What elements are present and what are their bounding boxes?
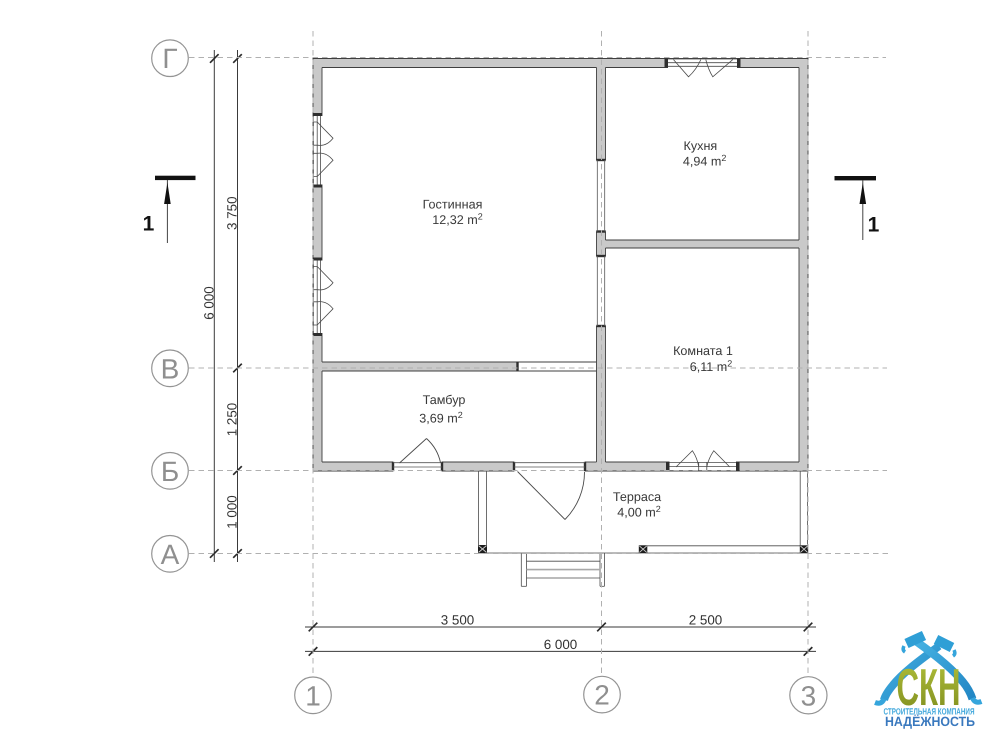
svg-text:1 000: 1 000 [224,495,239,529]
svg-text:Терраса: Терраса [613,490,661,504]
svg-text:1: 1 [143,213,155,236]
svg-text:2: 2 [594,680,610,711]
svg-text:В: В [161,353,180,384]
svg-text:Б: Б [161,456,179,487]
svg-text:1: 1 [868,214,880,237]
svg-text:3,69 m2: 3,69 m2 [419,410,463,426]
svg-text:2 500: 2 500 [689,613,723,628]
svg-text:Тамбур: Тамбур [423,393,466,407]
svg-text:1: 1 [305,680,321,711]
svg-text:А: А [161,539,180,570]
svg-text:Кухня: Кухня [684,139,718,153]
svg-text:6,11 m2: 6,11 m2 [690,358,733,374]
svg-text:НАДЁЖНОСТЬ: НАДЁЖНОСТЬ [885,714,975,729]
svg-text:Комната 1: Комната 1 [673,344,733,358]
svg-text:3 750: 3 750 [224,196,239,230]
svg-text:3: 3 [801,680,817,711]
svg-text:Г: Г [162,43,177,74]
svg-text:4,94 m2: 4,94 m2 [683,153,727,169]
svg-text:4,00 m2: 4,00 m2 [617,504,661,520]
svg-text:Гостинная: Гостинная [423,197,483,211]
svg-text:3 500: 3 500 [441,613,475,628]
svg-text:1 250: 1 250 [224,403,239,437]
svg-text:6 000: 6 000 [544,637,578,652]
svg-text:12,32 m2: 12,32 m2 [432,211,483,227]
svg-text:6 000: 6 000 [201,286,216,320]
